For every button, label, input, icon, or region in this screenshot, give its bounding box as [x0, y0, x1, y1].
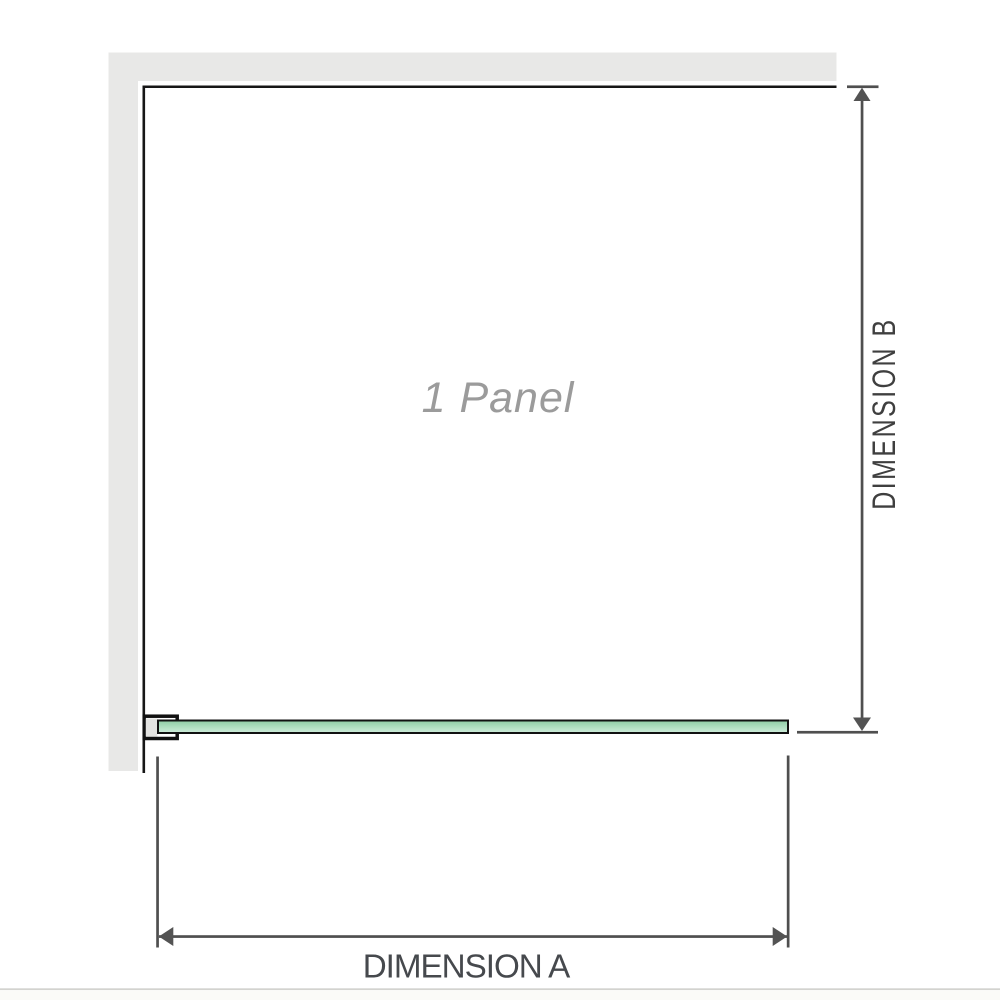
svg-text:1 Panel: 1 Panel	[422, 374, 575, 422]
svg-text:DIMENSION B: DIMENSION B	[867, 317, 903, 509]
svg-text:DIMENSION A: DIMENSION A	[363, 949, 571, 986]
